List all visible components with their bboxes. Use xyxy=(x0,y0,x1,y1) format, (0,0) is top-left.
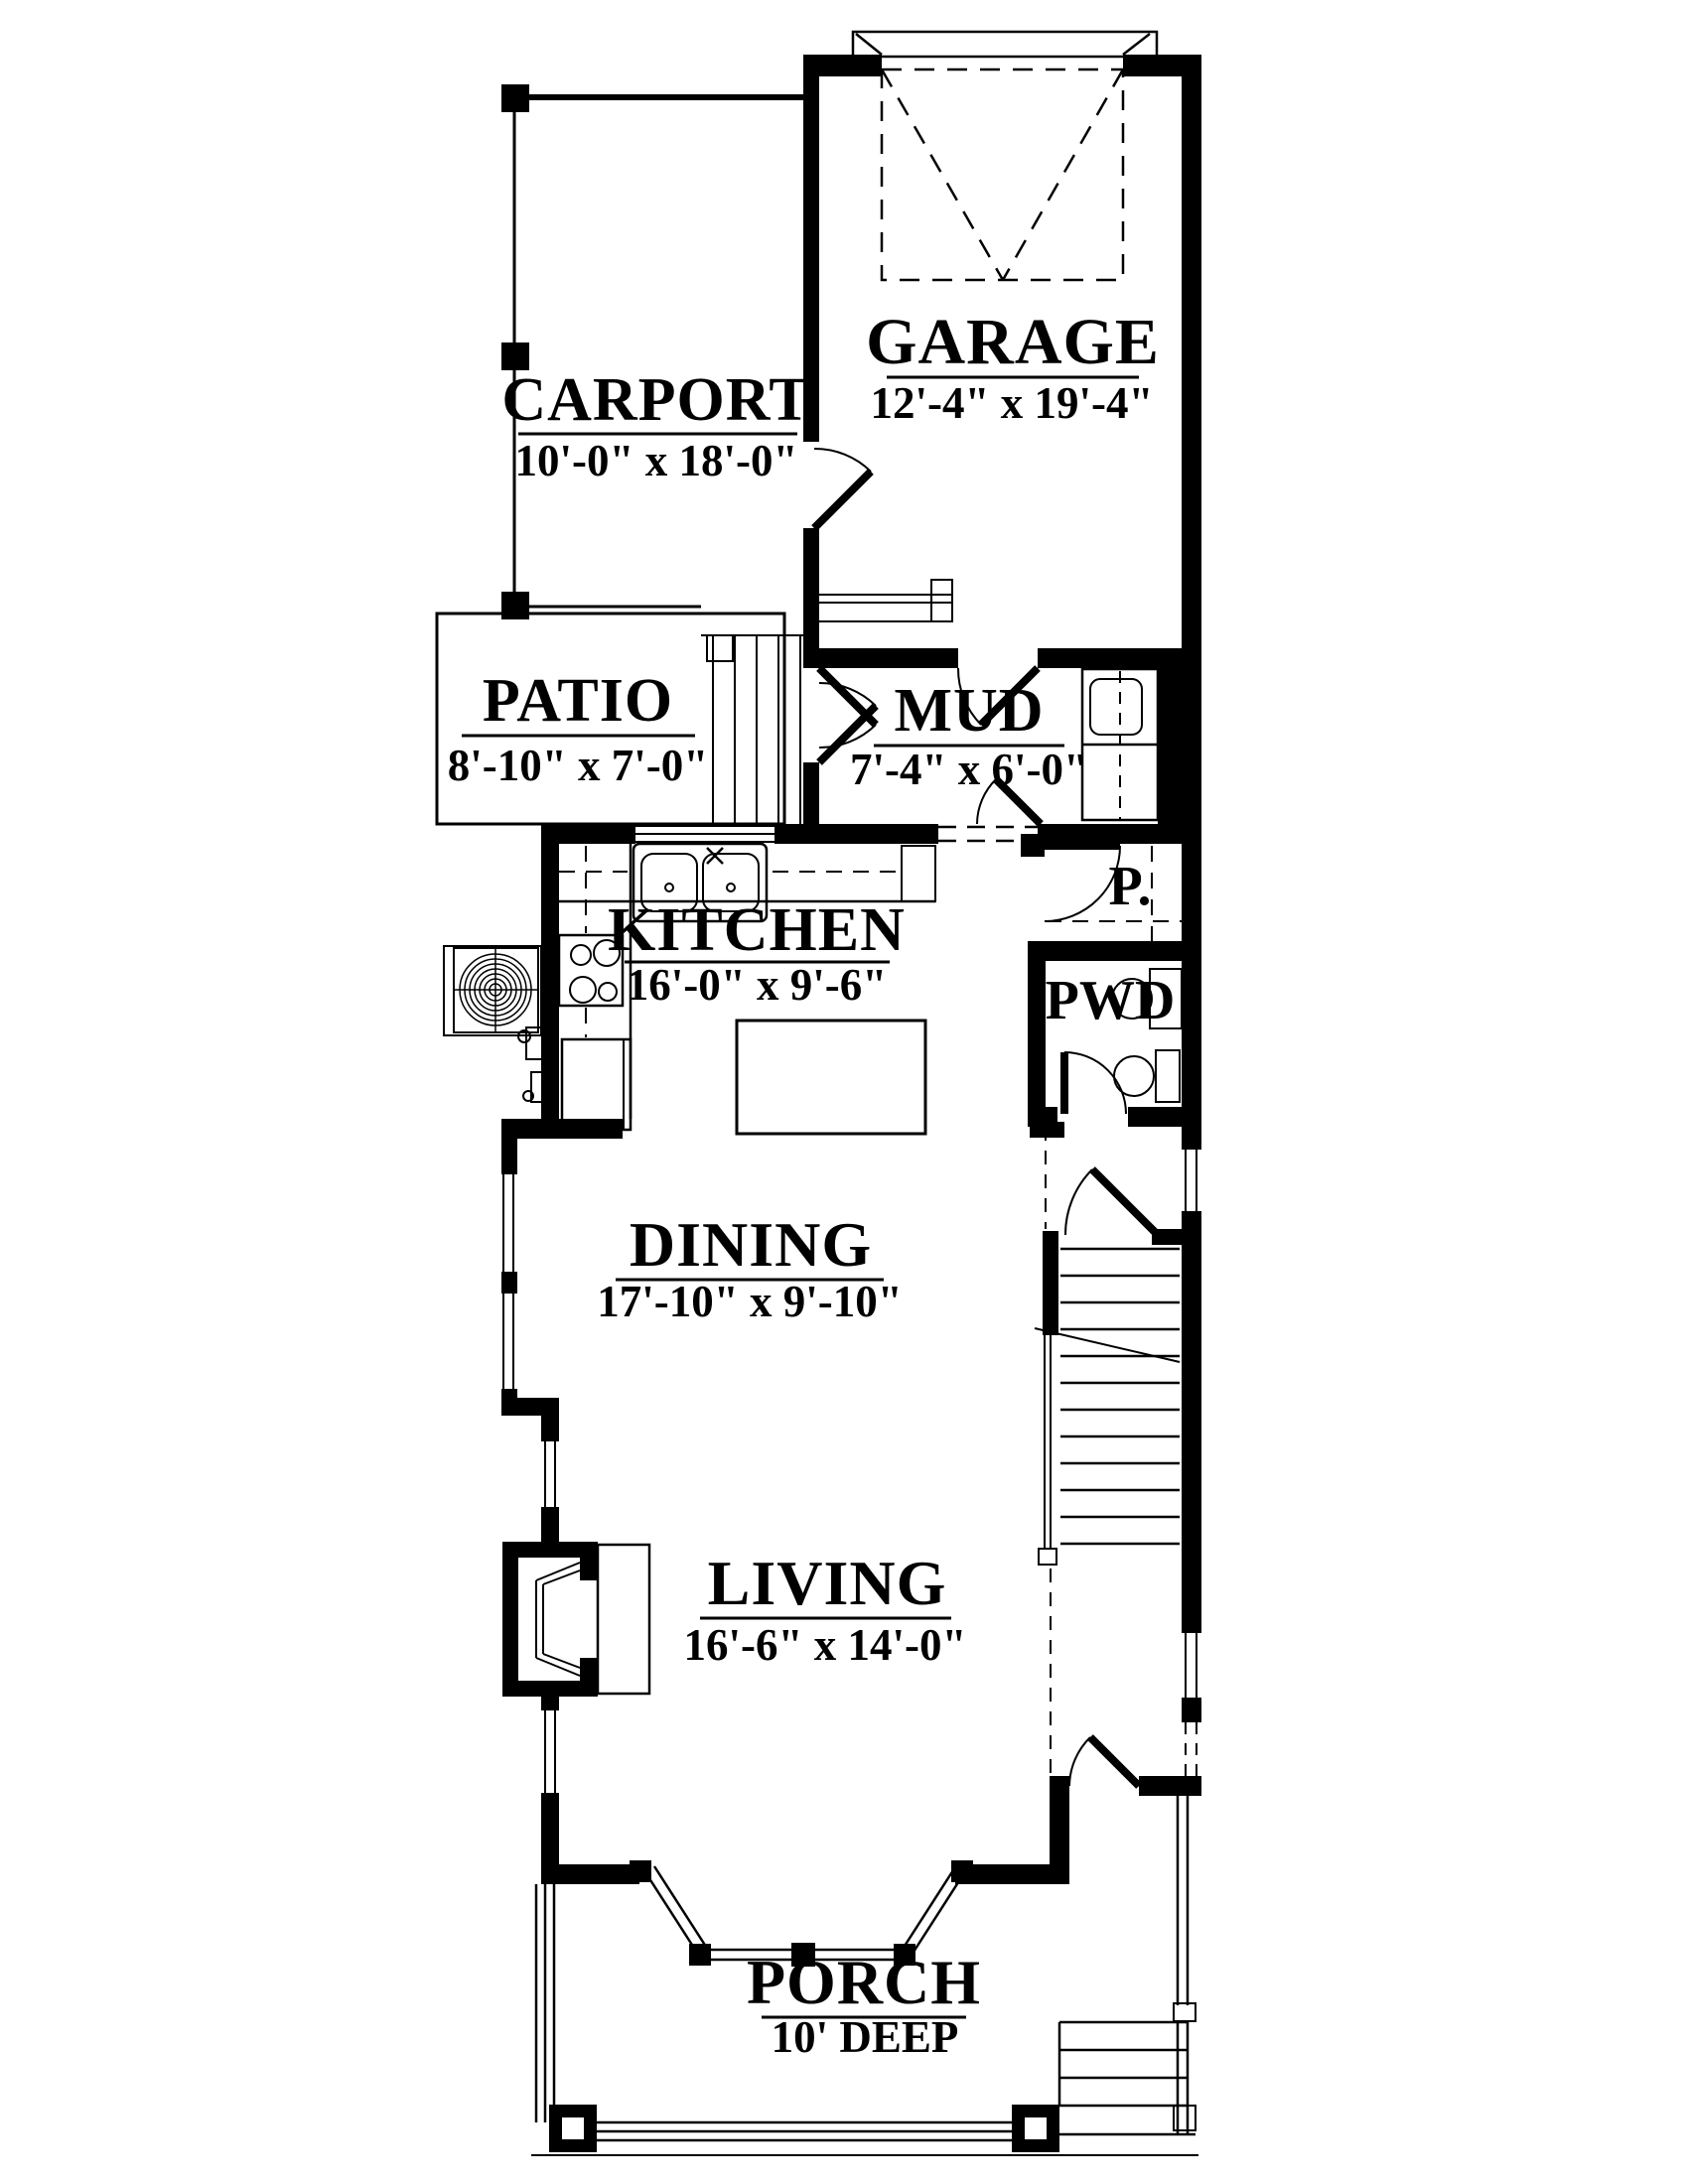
patio-dims: 8'-10" x 7'-0" xyxy=(448,741,708,790)
carport-post xyxy=(501,84,529,112)
kitchen-label: KITCHEN xyxy=(608,896,906,964)
mud-dims: 7'-4" x 6'-0" xyxy=(850,745,1088,794)
carport-label: CARPORT xyxy=(501,366,810,434)
porch-dims: 10' DEEP xyxy=(772,2012,959,2062)
patio-label: PATIO xyxy=(483,667,673,735)
right-wall-window-icon xyxy=(1182,1150,1201,1211)
porch-column-icon xyxy=(549,2105,597,2152)
floor-plan: CARPORT 10'-0" x 18'-0" xyxy=(0,0,1688,2184)
dining-window-icon xyxy=(501,1294,517,1389)
porch-column-icon xyxy=(1012,2105,1059,2152)
carport-post xyxy=(501,592,529,619)
garage-dims: 12'-4" x 19'-4" xyxy=(871,378,1154,428)
right-wall-window-icon xyxy=(1182,1633,1201,1698)
mud-label: MUD xyxy=(894,677,1044,745)
dining: DINING 17'-10" x 9'-10" xyxy=(597,1209,902,1326)
dining-window-icon xyxy=(501,1174,517,1272)
carport-dims: 10'-0" x 18'-0" xyxy=(515,436,798,485)
garage-label: GARAGE xyxy=(866,306,1160,378)
kitchen-dims: 16'-0" x 9'-6" xyxy=(627,960,887,1010)
pantry-label: P. xyxy=(1108,856,1151,917)
dining-dims: 17'-10" x 9'-10" xyxy=(597,1277,902,1326)
dining-label: DINING xyxy=(630,1209,872,1280)
right-wall-opening xyxy=(1182,1722,1201,1778)
powder-label: PWD xyxy=(1046,970,1176,1031)
living-label: LIVING xyxy=(708,1548,947,1618)
porch-label: PORCH xyxy=(747,1947,981,2017)
floor-plan-drawing: CARPORT 10'-0" x 18'-0" xyxy=(0,0,1688,2184)
living-dims: 16'-6" x 14'-0" xyxy=(684,1620,967,1670)
